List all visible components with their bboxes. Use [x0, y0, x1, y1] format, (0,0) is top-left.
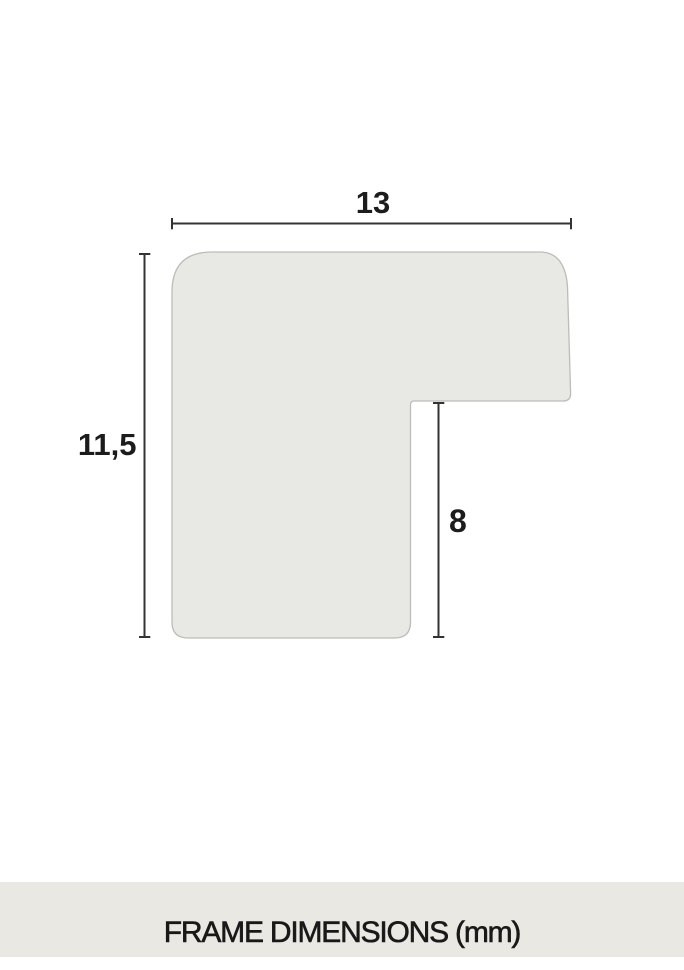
svg-text:8: 8 [449, 503, 467, 539]
svg-text:11,5: 11,5 [78, 427, 137, 462]
svg-text:13: 13 [356, 185, 390, 220]
